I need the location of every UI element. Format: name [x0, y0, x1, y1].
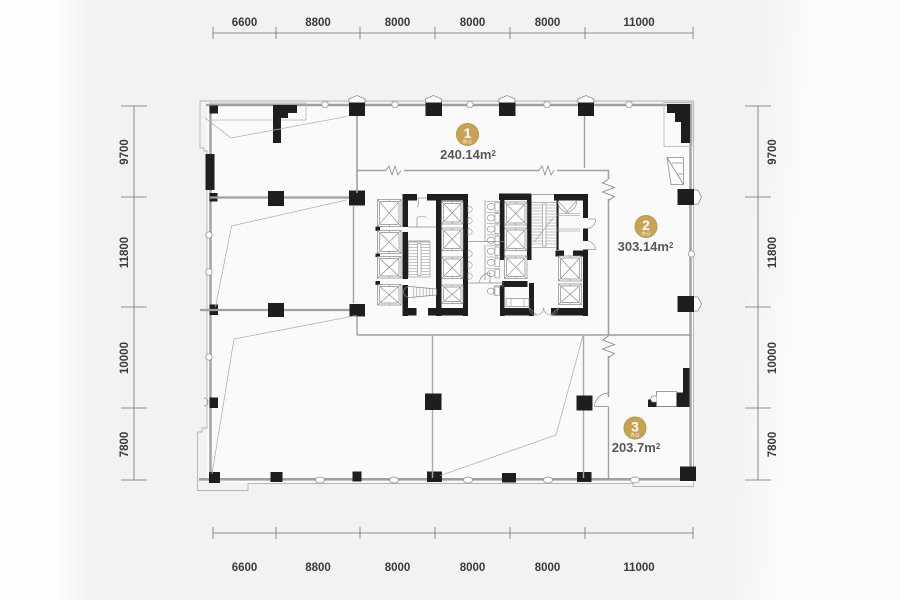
- svg-text:11000: 11000: [623, 562, 654, 574]
- svg-text:8800: 8800: [305, 17, 331, 29]
- svg-text:办公: 办公: [463, 138, 473, 145]
- svg-text:7800: 7800: [767, 432, 779, 458]
- svg-text:8000: 8000: [385, 17, 411, 29]
- svg-text:9700: 9700: [767, 139, 779, 165]
- svg-text:8000: 8000: [535, 562, 561, 574]
- svg-text:6600: 6600: [232, 562, 258, 574]
- svg-text:9700: 9700: [119, 139, 131, 165]
- svg-text:10000: 10000: [119, 342, 131, 374]
- svg-text:6600: 6600: [232, 17, 258, 29]
- svg-text:11000: 11000: [623, 17, 654, 29]
- svg-text:8000: 8000: [460, 562, 486, 574]
- svg-text:203.7m2: 203.7m2: [612, 440, 661, 455]
- svg-text:303.14m2: 303.14m2: [618, 239, 674, 254]
- svg-text:8800: 8800: [305, 562, 331, 574]
- svg-text:10000: 10000: [767, 342, 779, 374]
- svg-text:8000: 8000: [460, 17, 486, 29]
- svg-text:7800: 7800: [119, 432, 131, 458]
- svg-text:240.14m2: 240.14m2: [440, 147, 496, 162]
- svg-text:11800: 11800: [119, 237, 131, 268]
- svg-text:11800: 11800: [767, 237, 779, 268]
- svg-text:8000: 8000: [535, 17, 561, 29]
- svg-text:8000: 8000: [385, 562, 411, 574]
- svg-text:办公: 办公: [630, 432, 640, 439]
- svg-text:办公: 办公: [641, 230, 651, 237]
